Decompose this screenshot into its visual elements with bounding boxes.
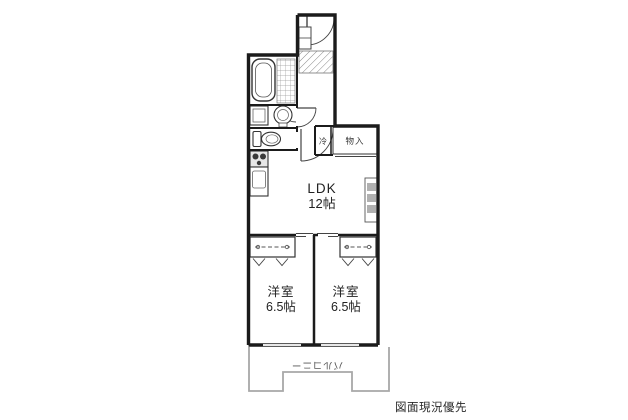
bedroom-right: 洋室 6.5帖 bbox=[331, 284, 361, 314]
ldk-label: LDK bbox=[307, 181, 336, 196]
fridge-space: 冷 bbox=[319, 136, 327, 146]
washing-machine-icon bbox=[250, 106, 268, 125]
floor-plan-page: LDK 12帖 冷 物入 bbox=[0, 0, 628, 420]
bifold-door-icon bbox=[342, 259, 374, 266]
meter-box bbox=[365, 178, 378, 222]
bedroom-right-size-label: 6.5帖 bbox=[331, 299, 361, 314]
bedroom-left-label: 洋室 bbox=[267, 284, 294, 299]
toilet-room bbox=[253, 132, 281, 147]
entrance-tile bbox=[299, 51, 333, 73]
floor-plan: LDK 12帖 冷 物入 bbox=[0, 0, 628, 420]
washroom bbox=[250, 106, 292, 127]
washbasin-icon bbox=[274, 106, 292, 127]
washroom-door-icon bbox=[297, 108, 316, 127]
closet-right bbox=[340, 237, 376, 266]
window-left bbox=[263, 344, 301, 347]
stove-icon bbox=[250, 151, 268, 167]
toilet-icon bbox=[253, 132, 281, 147]
disclaimer-note: 図面現況優先 bbox=[395, 400, 467, 414]
bathtub-icon bbox=[252, 59, 275, 101]
bedroom-right-label: 洋室 bbox=[332, 284, 359, 299]
bedroom-left-size-label: 6.5帖 bbox=[266, 299, 296, 314]
bedroom-left: 洋室 6.5帖 bbox=[266, 284, 296, 314]
closet-left bbox=[250, 237, 295, 266]
window-right bbox=[321, 344, 359, 347]
shoe-cabinet-icon bbox=[299, 27, 311, 49]
closet-label: 物入 bbox=[345, 136, 364, 146]
closet: 物入 bbox=[333, 127, 377, 157]
ldk-room: LDK 12帖 bbox=[307, 178, 378, 222]
bath-floor bbox=[277, 59, 295, 103]
bifold-door-icon bbox=[253, 259, 288, 266]
fridge-label: 冷 bbox=[319, 136, 327, 146]
balcony-label: バルコニー bbox=[291, 359, 343, 370]
ldk-size-label: 12帖 bbox=[308, 196, 335, 211]
entrance bbox=[299, 16, 334, 73]
sink-icon bbox=[250, 167, 268, 196]
ldk-door-icon bbox=[301, 129, 333, 161]
balcony: バルコニー bbox=[249, 347, 389, 391]
kitchen bbox=[250, 151, 268, 196]
